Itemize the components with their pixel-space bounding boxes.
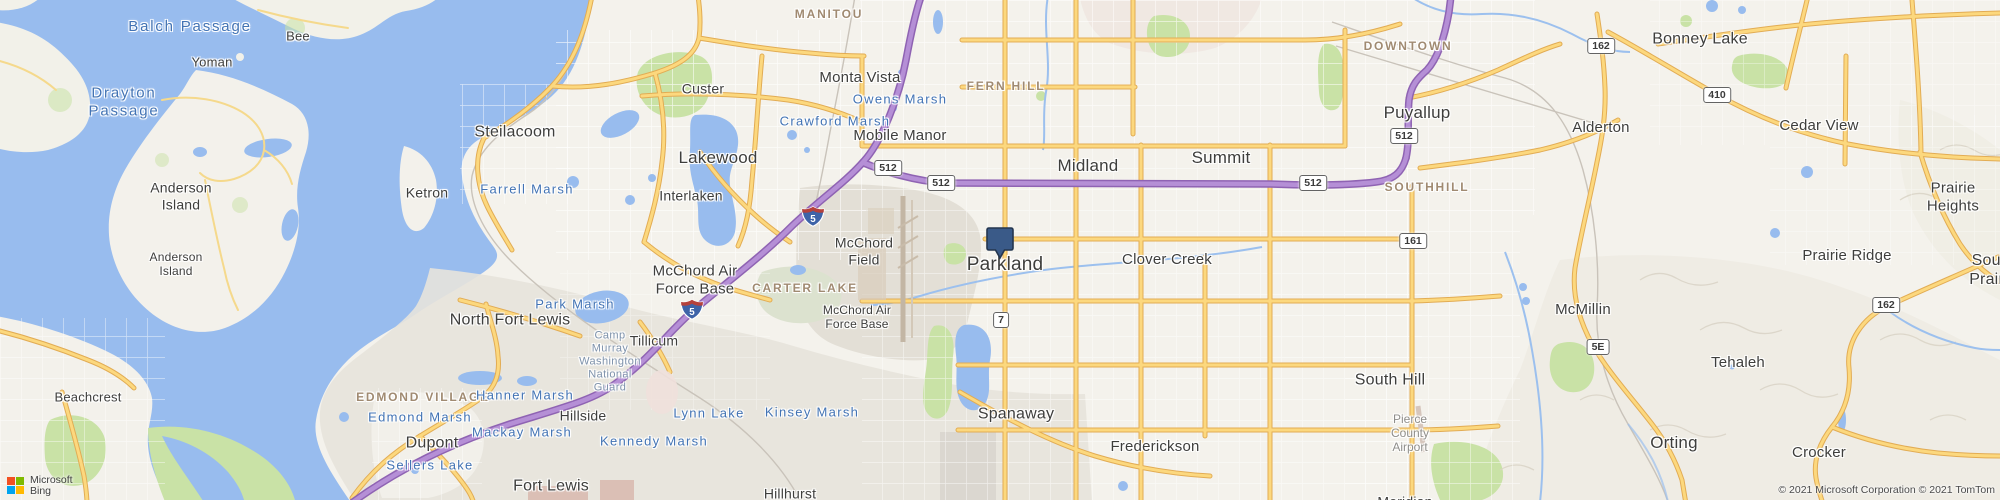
bing-logo[interactable]: Microsoft Bing bbox=[7, 475, 73, 497]
eagle-island bbox=[236, 53, 244, 61]
ms-logo-square bbox=[16, 486, 24, 494]
tillicum-va-area bbox=[646, 370, 678, 414]
ms-logo-square bbox=[7, 486, 15, 494]
ms-logo-square bbox=[16, 477, 24, 485]
ms-logo-square bbox=[7, 477, 15, 485]
map-pin-parkland[interactable] bbox=[985, 226, 1015, 260]
map-canvas[interactable]: 5551251251251271611621624105E Balch Pass… bbox=[0, 0, 2000, 500]
bing-logo-text: Microsoft Bing bbox=[30, 475, 73, 497]
logo-line-2: Bing bbox=[30, 486, 73, 497]
copyright-text: © 2021 Microsoft Corporation © 2021 TomT… bbox=[1778, 484, 1995, 496]
microsoft-logo-icon bbox=[7, 477, 24, 494]
map-pin-shape bbox=[987, 228, 1013, 258]
